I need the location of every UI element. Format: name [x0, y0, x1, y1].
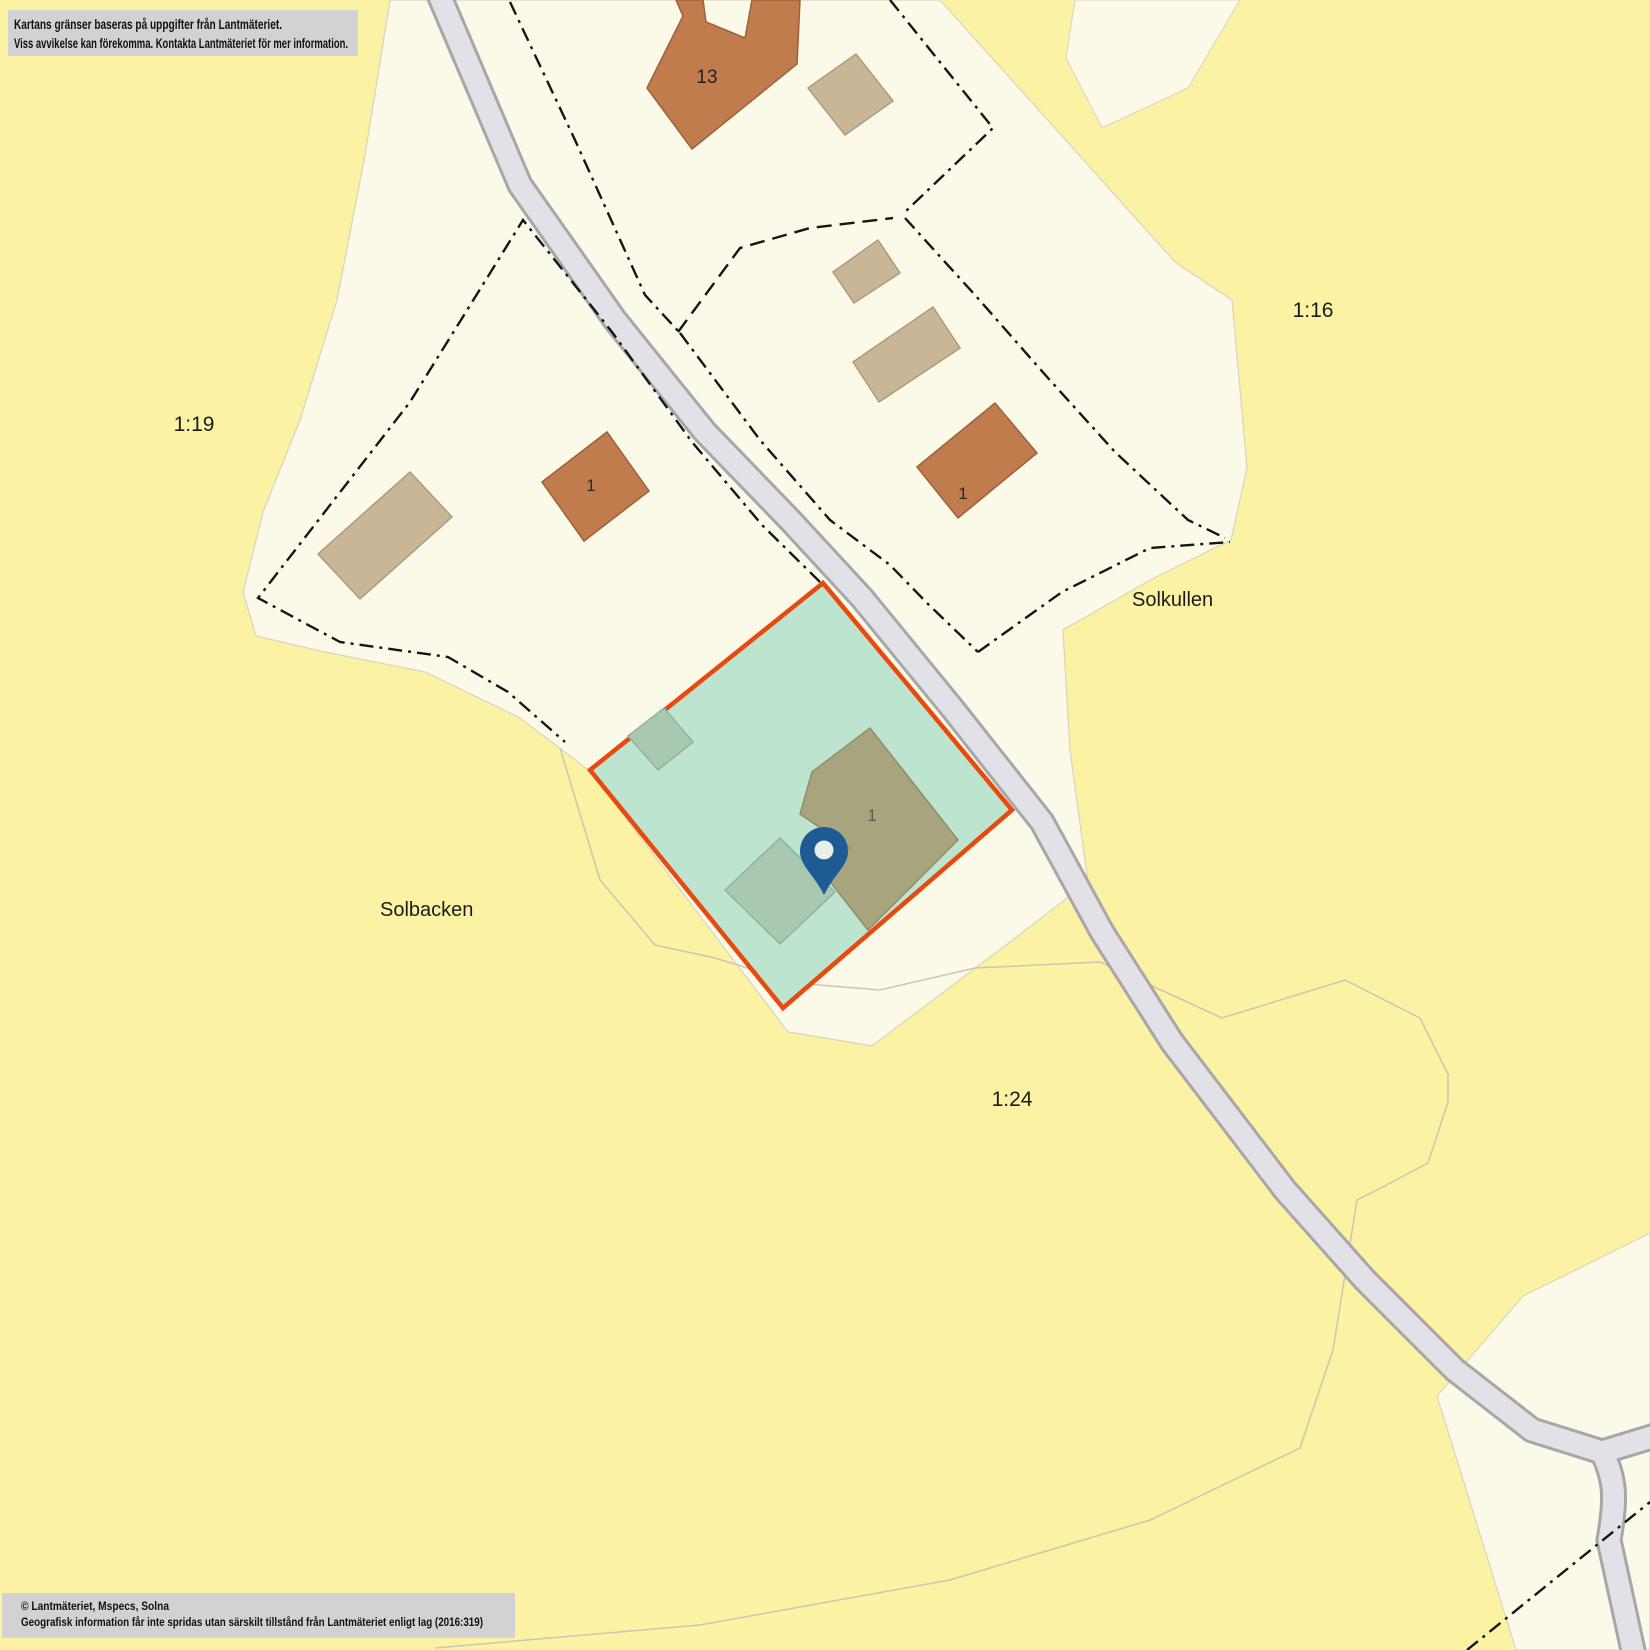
attribution-line1: © Lantmäteriet, Mspecs, Solna: [21, 1599, 169, 1613]
building-label-1-mid: 1: [586, 476, 595, 495]
disclaimer-line1: Kartans gränser baseras på uppgifter frå…: [14, 16, 282, 32]
attribution-line2: Geografisk information får inte spridas …: [21, 1615, 483, 1629]
disclaimer-box: Kartans gränser baseras på uppgifter frå…: [8, 10, 358, 56]
disclaimer-line2: Viss avvikelse kan förekomma. Kontakta L…: [14, 35, 348, 51]
parcel-label-1-16: 1:16: [1293, 299, 1334, 322]
cadastral-map: 1:19 1:16 1:24 Solkullen Solbacken 13 1 …: [0, 0, 1650, 1650]
building-label-13: 13: [696, 67, 717, 88]
building-label-1-right: 1: [958, 484, 967, 503]
place-label-solkullen: Solkullen: [1132, 589, 1213, 611]
place-label-solbacken: Solbacken: [380, 899, 473, 921]
parcel-label-1-19: 1:19: [174, 413, 215, 436]
building-label-1-highlight: 1: [867, 806, 876, 825]
attribution-box: © Lantmäteriet, Mspecs, Solna Geografisk…: [2, 1593, 515, 1638]
pin-hole: [815, 841, 834, 860]
map-canvas[interactable]: 1:19 1:16 1:24 Solkullen Solbacken 13 1 …: [0, 0, 1650, 1650]
parcel-label-1-24: 1:24: [992, 1088, 1033, 1111]
